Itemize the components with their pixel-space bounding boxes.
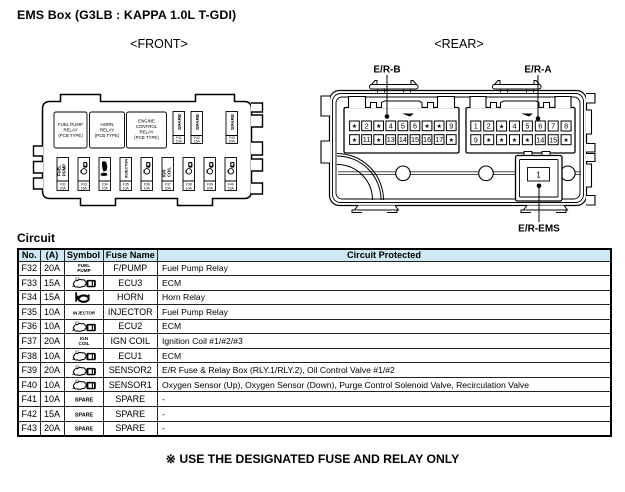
svg-text:9: 9 (474, 135, 478, 144)
svg-text:2: 2 (365, 122, 369, 131)
svg-text:COIL: COIL (167, 167, 172, 177)
svg-text:9: 9 (449, 122, 453, 131)
svg-text:SPARE: SPARE (195, 113, 201, 130)
svg-text:13: 13 (387, 135, 395, 144)
svg-text:★: ★ (424, 123, 429, 130)
svg-text:COIL: COIL (78, 341, 89, 346)
svg-text:PUMP: PUMP (62, 164, 67, 176)
svg-text:HORN: HORN (101, 122, 114, 127)
svg-text:15A: 15A (81, 186, 88, 190)
svg-text:(PCB TYPE): (PCB TYPE) (95, 133, 120, 138)
svg-text:SPARE: SPARE (177, 113, 183, 130)
svg-text:20A: 20A (207, 186, 214, 190)
svg-text:8: 8 (564, 122, 568, 131)
svg-text:RELAY: RELAY (63, 128, 77, 133)
svg-text:PUMP: PUMP (77, 268, 90, 273)
svg-text:★: ★ (499, 123, 504, 130)
svg-text:RELAY: RELAY (139, 130, 153, 135)
svg-text:★: ★ (352, 123, 357, 130)
svg-text:2: 2 (487, 122, 491, 131)
svg-text:4: 4 (389, 122, 393, 131)
svg-text:★: ★ (376, 137, 381, 144)
svg-text:★: ★ (449, 137, 454, 144)
svg-text:6: 6 (538, 122, 542, 131)
svg-text:20A: 20A (229, 140, 236, 144)
svg-text:4: 4 (512, 122, 516, 131)
svg-text:★: ★ (525, 137, 530, 144)
svg-text:★: ★ (437, 123, 442, 130)
svg-text:INJECTOR: INJECTOR (124, 159, 128, 178)
svg-text:14: 14 (399, 135, 407, 144)
svg-text:20A: 20A (60, 186, 67, 190)
svg-text:E/R-B: E/R-B (373, 65, 400, 76)
svg-text:SPARE: SPARE (230, 113, 236, 130)
svg-text:E/R-A: E/R-A (524, 65, 551, 76)
svg-text:10A: 10A (176, 140, 183, 144)
svg-text:10A: 10A (123, 186, 130, 190)
svg-text:SPARE: SPARE (74, 427, 93, 433)
svg-text:11: 11 (363, 135, 371, 144)
svg-text:15A: 15A (194, 140, 201, 144)
svg-text:★: ★ (512, 137, 517, 144)
svg-text:★: ★ (376, 123, 381, 130)
svg-text:10A: 10A (102, 186, 109, 190)
svg-text:ENGINE: ENGINE (138, 119, 155, 124)
svg-text:14: 14 (536, 135, 544, 144)
svg-text:10A: 10A (144, 186, 151, 190)
svg-text:E/R-EMS: E/R-EMS (518, 224, 560, 235)
svg-text:FUEL PUMP: FUEL PUMP (58, 122, 83, 127)
svg-text:(PCB TYPE): (PCB TYPE) (134, 135, 159, 140)
svg-text:RELAY: RELAY (100, 128, 114, 133)
svg-text:15: 15 (549, 135, 557, 144)
svg-text:16: 16 (423, 135, 431, 144)
svg-text:7: 7 (551, 122, 555, 131)
svg-text:SPARE: SPARE (74, 412, 93, 418)
svg-text:10A: 10A (228, 186, 235, 190)
svg-text:20A: 20A (165, 186, 172, 190)
svg-text:15: 15 (411, 135, 419, 144)
svg-text:17: 17 (435, 135, 443, 144)
svg-text:★: ★ (486, 137, 491, 144)
svg-text:10A: 10A (186, 186, 193, 190)
svg-text:1: 1 (536, 170, 541, 179)
svg-text:★: ★ (563, 137, 568, 144)
svg-text:INJECTOR: INJECTOR (72, 310, 95, 315)
svg-text:6: 6 (413, 122, 417, 131)
svg-text:★: ★ (352, 137, 357, 144)
svg-text:(PCB TYPE): (PCB TYPE) (58, 133, 83, 138)
svg-text:CONTROL: CONTROL (136, 124, 158, 129)
svg-text:FUEL: FUEL (78, 263, 90, 268)
svg-text:5: 5 (401, 122, 405, 131)
svg-text:SPARE: SPARE (74, 398, 93, 404)
svg-text:5: 5 (525, 122, 529, 131)
svg-text:IGN: IGN (79, 336, 88, 341)
svg-text:★: ★ (499, 137, 504, 144)
svg-text:1: 1 (474, 122, 478, 131)
